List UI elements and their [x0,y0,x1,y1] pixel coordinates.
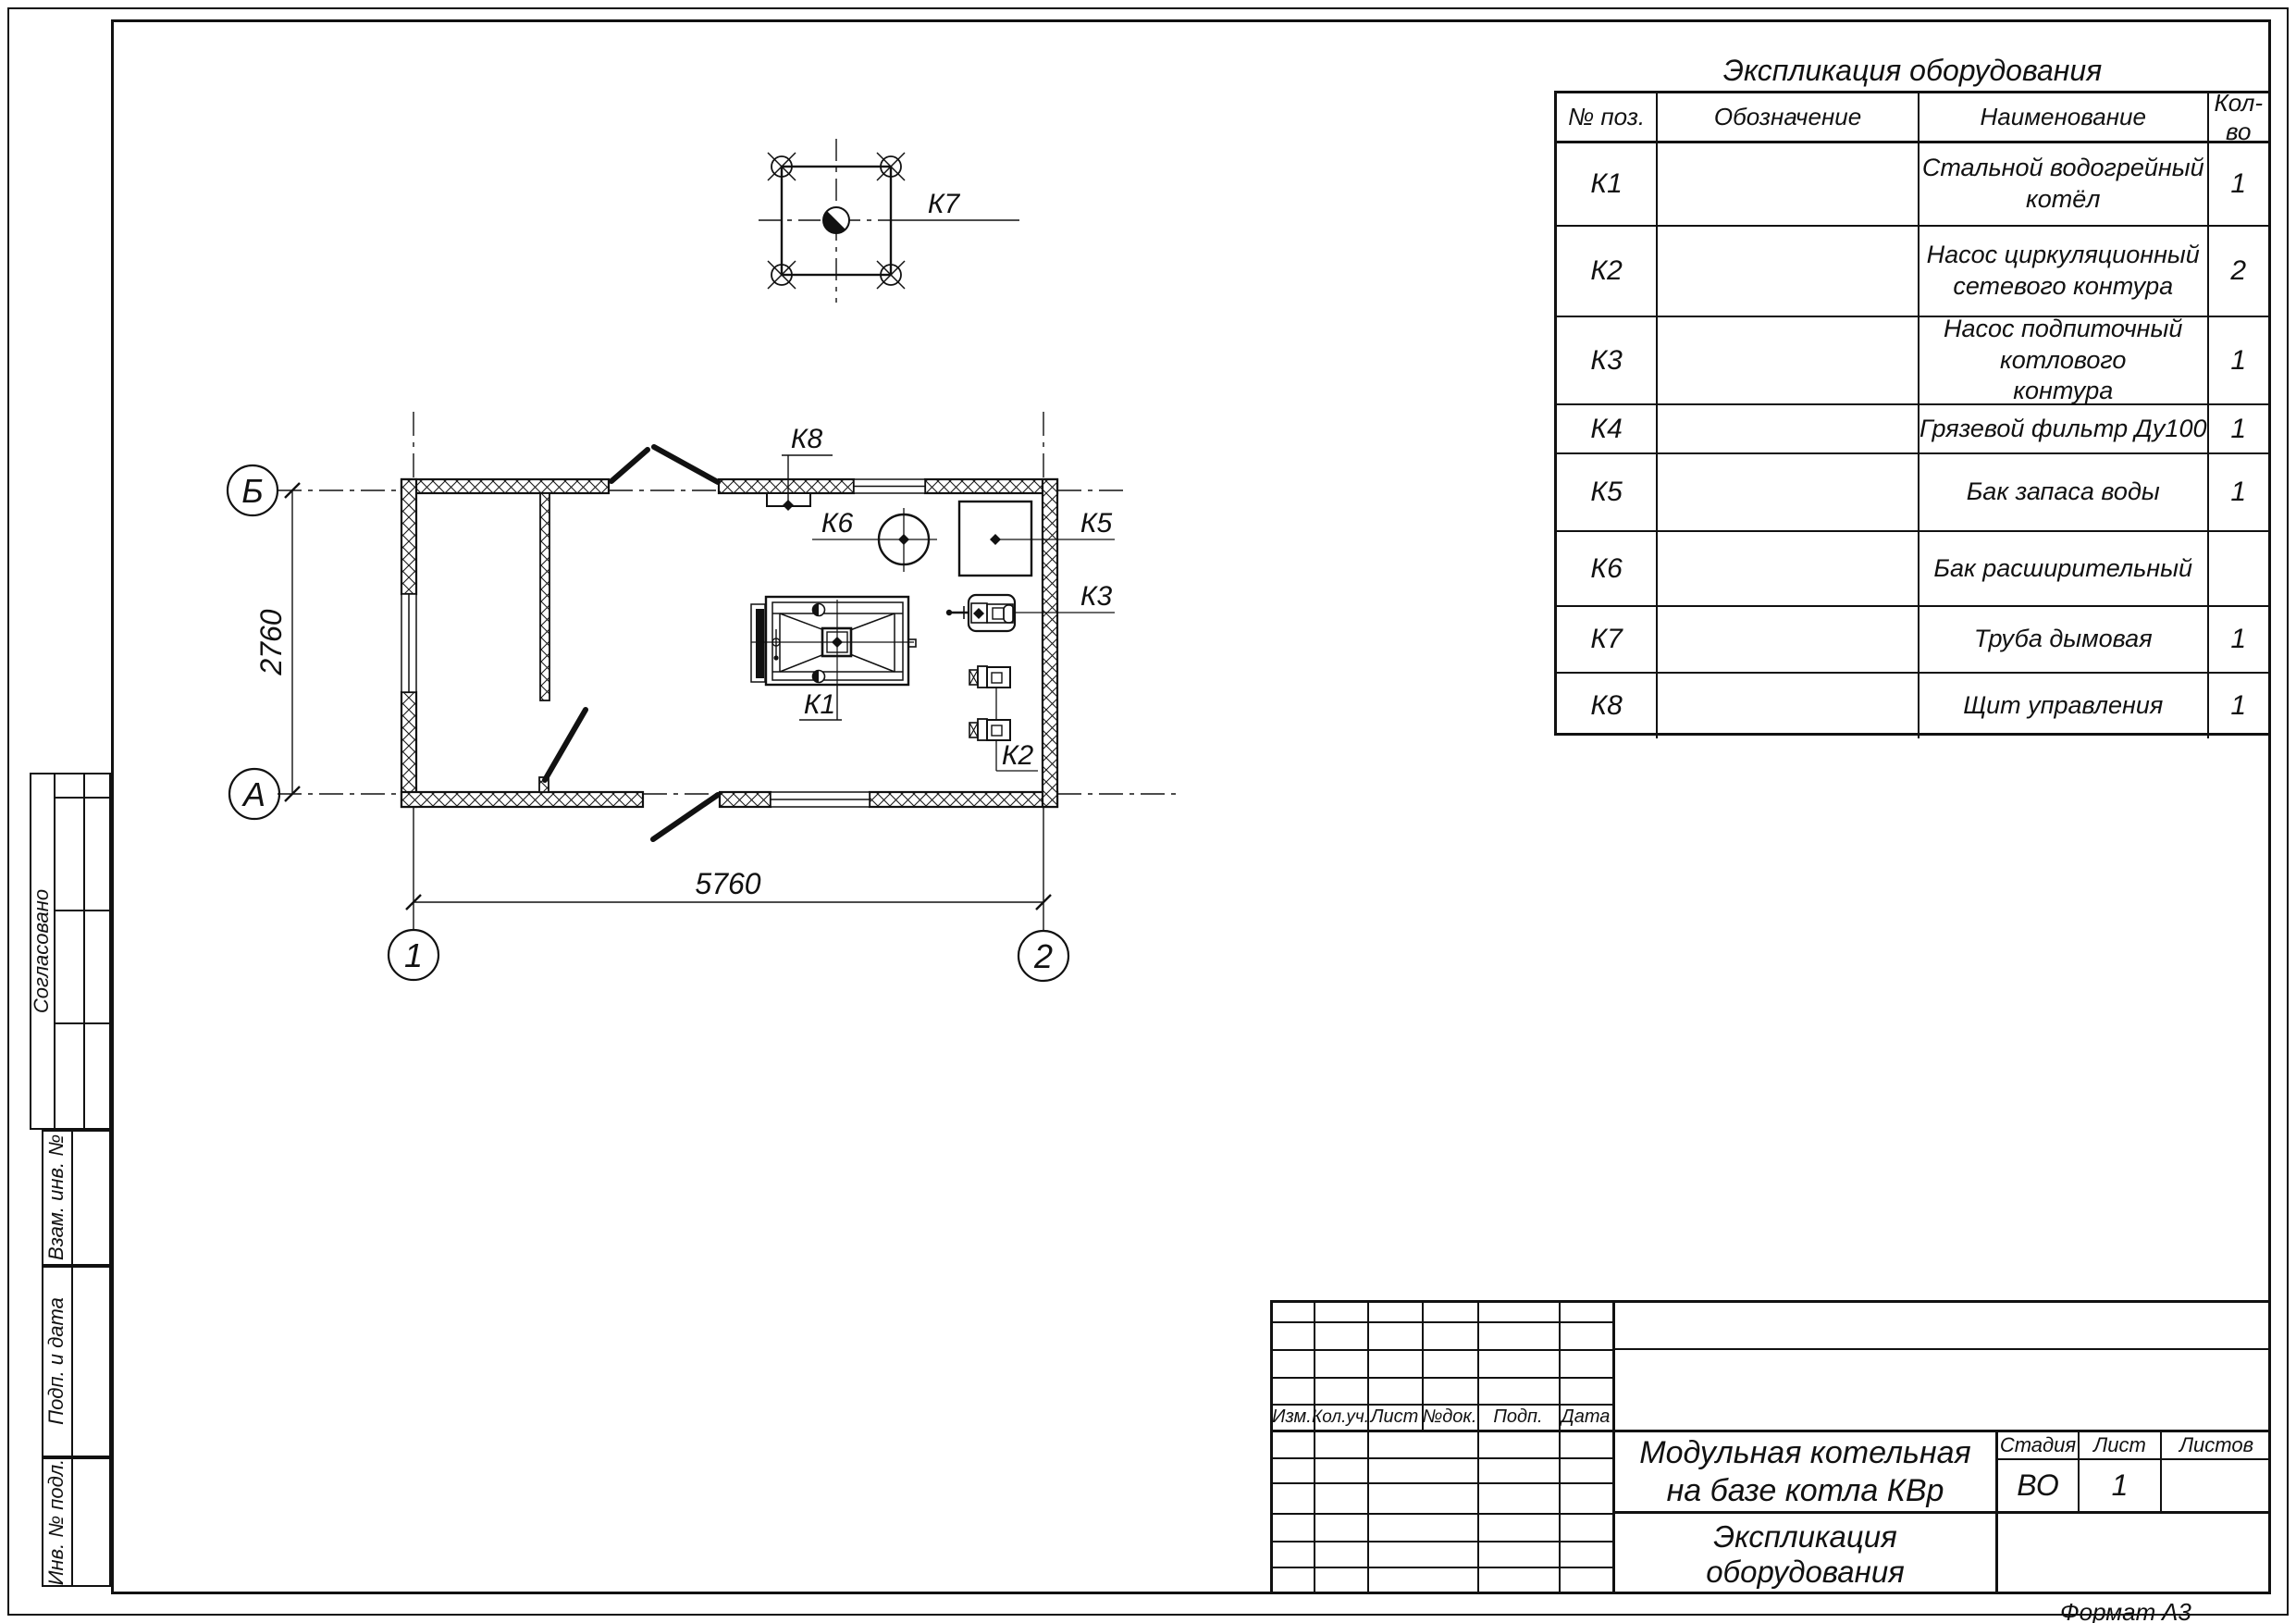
cell-pos: К8 [1557,674,1658,738]
col-header-name: Наименование [1920,93,2209,141]
sheet-label: Лист [2080,1432,2160,1458]
rev-header-podp: Подп. [1477,1405,1559,1430]
cell-qty: 1 [2209,317,2269,403]
table-row: К8 Щит управления 1 [1557,674,2268,738]
col-header-qty: Кол-во [2209,93,2269,141]
label-k6: К6 [821,508,854,539]
label-k3: К3 [1080,581,1113,612]
control-panel-k8-symbol: К8 [767,424,833,511]
cell-pos: К2 [1557,227,1658,316]
stamp-line [1270,1482,1614,1484]
stamp-line [1270,1541,1614,1542]
cell-name: Насос циркуляционный сетевого контура [1920,227,2209,316]
stamp-line [1270,1321,1614,1323]
dimension-width: 5760 [406,867,1051,910]
table-row: К4 Грязевой фильтр Ду100 1 [1557,405,2268,454]
cell-designation [1658,607,1920,672]
expansion-tank-k6-symbol: К6 [812,508,937,572]
stamp-line [1270,1513,1614,1515]
rev-header-list: Лист [1367,1405,1422,1430]
label-k7: К7 [928,189,961,219]
equipment-table-header: № поз. Обозначение Наименование Кол-во [1557,93,2268,143]
rev-header-ndok: №док. [1422,1405,1477,1430]
cell-name: Стальной водогрейный котёл [1920,143,2209,225]
axis-markers [228,465,1068,981]
stage-value: ВО [1998,1460,2078,1511]
dimension-height: 2760 [254,483,300,801]
stamp-line [1270,1349,1614,1351]
cell-pos: К5 [1557,454,1658,530]
equipment-table-title: Экспликация оборудования [1554,52,2271,89]
cell-name: Насос подпиточный котлового контура [1920,317,2209,403]
pump-k3-symbol: К3 [946,581,1115,631]
water-tank-k5-symbol: К5 [959,502,1115,576]
rev-header-izm: Изм. [1270,1405,1314,1430]
cell-pos: К7 [1557,607,1658,672]
label-k5: К5 [1080,508,1113,539]
equipment-table: № поз. Обозначение Наименование Кол-во К… [1554,91,2271,736]
cell-designation [1658,317,1920,403]
col-header-pos: № поз. [1557,93,1658,141]
drawing-sheet: Согласовано Взам. инв. № Подп. и дата Ин… [0,0,2296,1623]
label-k1: К1 [804,689,835,720]
dim-width-text: 5760 [695,867,760,900]
axis-label-2: 2 [1033,937,1053,975]
table-row: К7 Труба дымовая 1 [1557,607,2268,674]
sheets-value [2162,1460,2271,1511]
pumps-k2-symbol: К2 [969,666,1038,771]
cell-qty [2209,532,2269,605]
cell-name: Щит управления [1920,674,2209,738]
stamp-line [1270,1567,1614,1568]
rev-header-data: Дата [1559,1405,1612,1430]
label-k2: К2 [1002,740,1034,771]
boiler-k1-symbol: К1 [751,597,916,720]
stamp-line [1270,1377,1614,1379]
cell-pos: К1 [1557,143,1658,225]
cell-designation [1658,674,1920,738]
cell-name: Грязевой фильтр Ду100 [1920,405,2209,452]
stamp-line [1559,1300,1561,1594]
stamp-line [1367,1300,1369,1594]
door-leaves [545,447,718,839]
format-value: А3 [2162,1598,2191,1623]
cell-designation [1658,405,1920,452]
pump-icon [969,666,1010,688]
format-label: Формат [2060,1598,2155,1623]
stamp-line [1615,1348,2271,1350]
sheets-label: Листов [2162,1432,2271,1458]
stamp-line [1314,1300,1315,1594]
cell-pos: К3 [1557,317,1658,403]
cell-designation [1658,454,1920,530]
cell-designation [1658,143,1920,225]
stamp-line [1477,1300,1479,1594]
stamp-line [1270,1300,1273,1594]
table-row: К3 Насос подпиточный котлового контура 1 [1557,317,2268,405]
cell-name: Бак запаса воды [1920,454,2209,530]
stamp-line [1270,1300,2271,1303]
cell-qty: 1 [2209,607,2269,672]
label-k8: К8 [791,424,823,454]
col-header-designation: Обозначение [1658,93,1920,141]
dim-height-text: 2760 [254,609,288,675]
doc-title: Экспликация оборудования [1615,1514,1995,1594]
project-title: Модульная котельная на базе котла КВр [1615,1432,1995,1511]
cell-designation [1658,227,1920,316]
table-row: К1 Стальной водогрейный котёл 1 [1557,143,2268,227]
cell-qty: 1 [2209,143,2269,225]
stamp-line [1270,1457,1614,1459]
axis-label-a: А [241,775,265,813]
cell-qty: 1 [2209,405,2269,452]
sheet-value: 1 [2080,1460,2160,1511]
cell-name: Бак расширительный [1920,532,2209,605]
table-row: К5 Бак запаса воды 1 [1557,454,2268,532]
axis-label-b: Б [241,472,263,510]
cell-pos: К4 [1557,405,1658,452]
axis-label-1: 1 [404,936,423,974]
axis-letters: Б А 1 2 [241,472,1053,975]
rev-header-koluch: Кол.уч. [1314,1405,1367,1430]
stage-label: Стадия [1998,1432,2078,1458]
cell-pos: К6 [1557,532,1658,605]
cell-qty: 1 [2209,674,2269,738]
table-row: К2 Насос циркуляционный сетевого контура… [1557,227,2268,317]
cell-qty: 1 [2209,454,2269,530]
table-row: К6 Бак расширительный [1557,532,2268,607]
pump-icon [969,719,1010,740]
cell-designation [1658,532,1920,605]
chimney-detail-k7: К7 [759,139,1019,303]
cell-qty: 2 [2209,227,2269,316]
cell-name: Труба дымовая [1920,607,2209,672]
